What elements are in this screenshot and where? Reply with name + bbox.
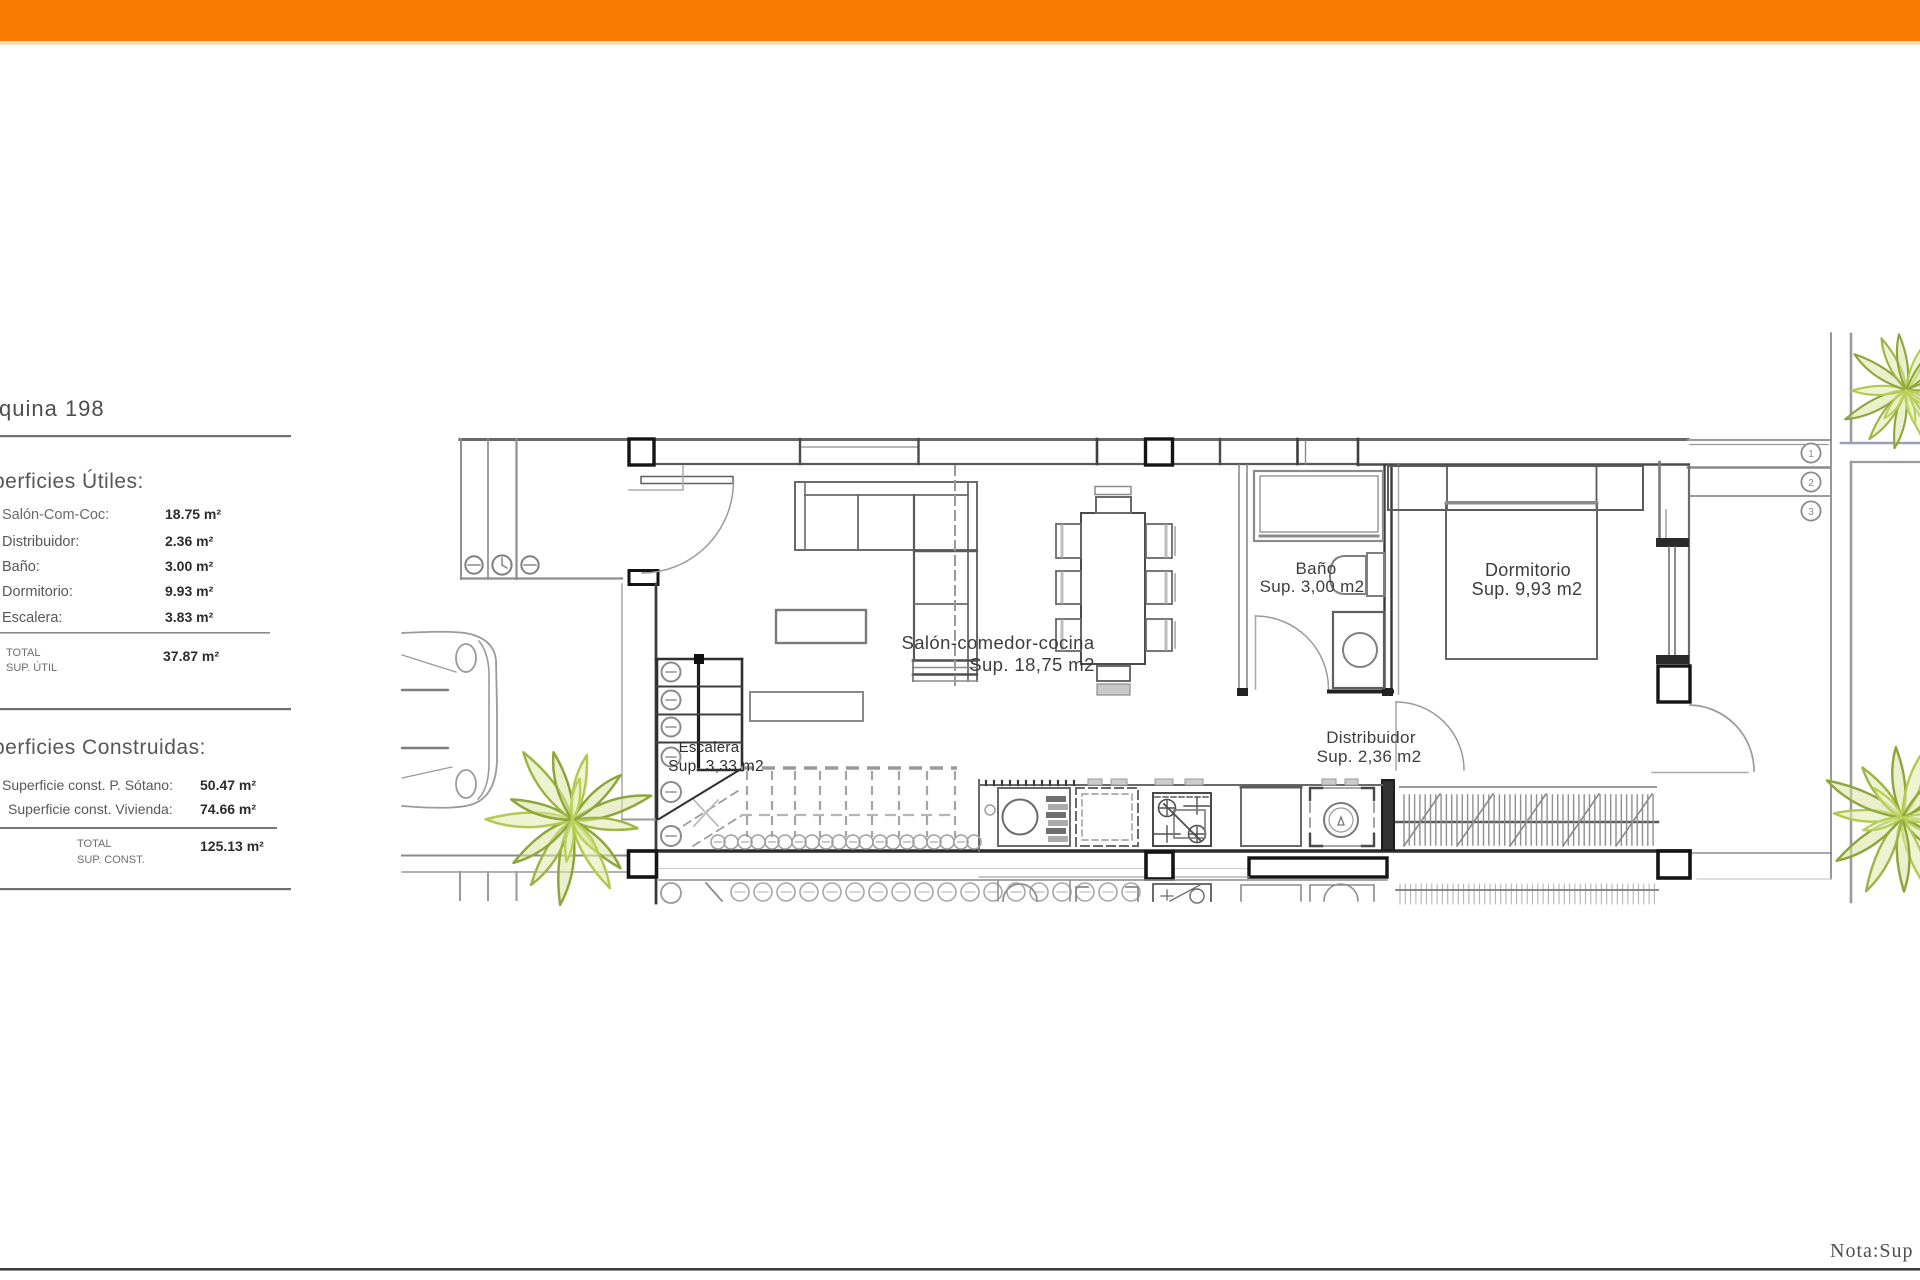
svg-text:SUP. ÚTIL: SUP. ÚTIL xyxy=(6,661,57,674)
svg-text:Escalera: Escalera xyxy=(679,739,740,756)
svg-text:Superficie const. P. Sótano:: Superficie const. P. Sótano: xyxy=(2,777,173,793)
svg-text:Baño:: Baño: xyxy=(2,559,40,575)
svg-text:TOTAL: TOTAL xyxy=(6,647,40,659)
svg-text:2.36 m²: 2.36 m² xyxy=(165,533,214,549)
svg-text:9.93 m²: 9.93 m² xyxy=(165,583,214,599)
svg-text:perficies Útiles:: perficies Útiles: xyxy=(0,470,144,493)
svg-text:Dormitorio: Dormitorio xyxy=(1485,560,1571,580)
svg-text:Sup. 9,93 m2: Sup. 9,93 m2 xyxy=(1472,579,1583,599)
svg-text:Dormitorio:: Dormitorio: xyxy=(2,584,73,600)
svg-text:Salón-Com-Coc:: Salón-Com-Coc: xyxy=(2,507,109,523)
svg-text:125.13 m²: 125.13 m² xyxy=(200,838,264,854)
svg-text:Sup. 18,75 m2: Sup. 18,75 m2 xyxy=(969,654,1095,675)
svg-text:TOTAL: TOTAL xyxy=(77,838,111,850)
svg-text:3.83 m²: 3.83 m² xyxy=(165,609,214,625)
svg-text:Distribuidor:: Distribuidor: xyxy=(2,534,79,550)
svg-text:50.47 m²: 50.47 m² xyxy=(200,777,256,793)
svg-text:3: 3 xyxy=(1808,507,1814,518)
svg-text:37.87 m²: 37.87 m² xyxy=(163,648,219,664)
svg-text:Nota:Sup: Nota:Sup xyxy=(1830,1240,1914,1262)
svg-text:squina 198: squina 198 xyxy=(0,396,105,421)
svg-text:2: 2 xyxy=(1808,478,1814,489)
svg-text:Distribuidor: Distribuidor xyxy=(1326,728,1416,747)
svg-text:74.66 m²: 74.66 m² xyxy=(200,801,256,817)
svg-text:Escalera:: Escalera: xyxy=(2,610,62,626)
svg-text:Baño: Baño xyxy=(1296,559,1337,578)
svg-text:Sup. 3,33 m2: Sup. 3,33 m2 xyxy=(668,758,764,775)
svg-text:18.75 m²: 18.75 m² xyxy=(165,506,221,522)
svg-text:Salón-comedor-cocina: Salón-comedor-cocina xyxy=(901,632,1094,653)
svg-text:perficies Construidas:: perficies Construidas: xyxy=(0,736,206,759)
svg-text:SUP. CONST.: SUP. CONST. xyxy=(77,854,145,866)
svg-text:Superficie const. Vivienda:: Superficie const. Vivienda: xyxy=(8,801,173,817)
svg-text:3.00 m²: 3.00 m² xyxy=(165,558,214,574)
svg-text:Sup. 2,36 m2: Sup. 2,36 m2 xyxy=(1317,747,1422,766)
svg-text:Sup. 3,00 m2: Sup. 3,00 m2 xyxy=(1260,577,1365,596)
svg-text:1: 1 xyxy=(1808,449,1814,460)
